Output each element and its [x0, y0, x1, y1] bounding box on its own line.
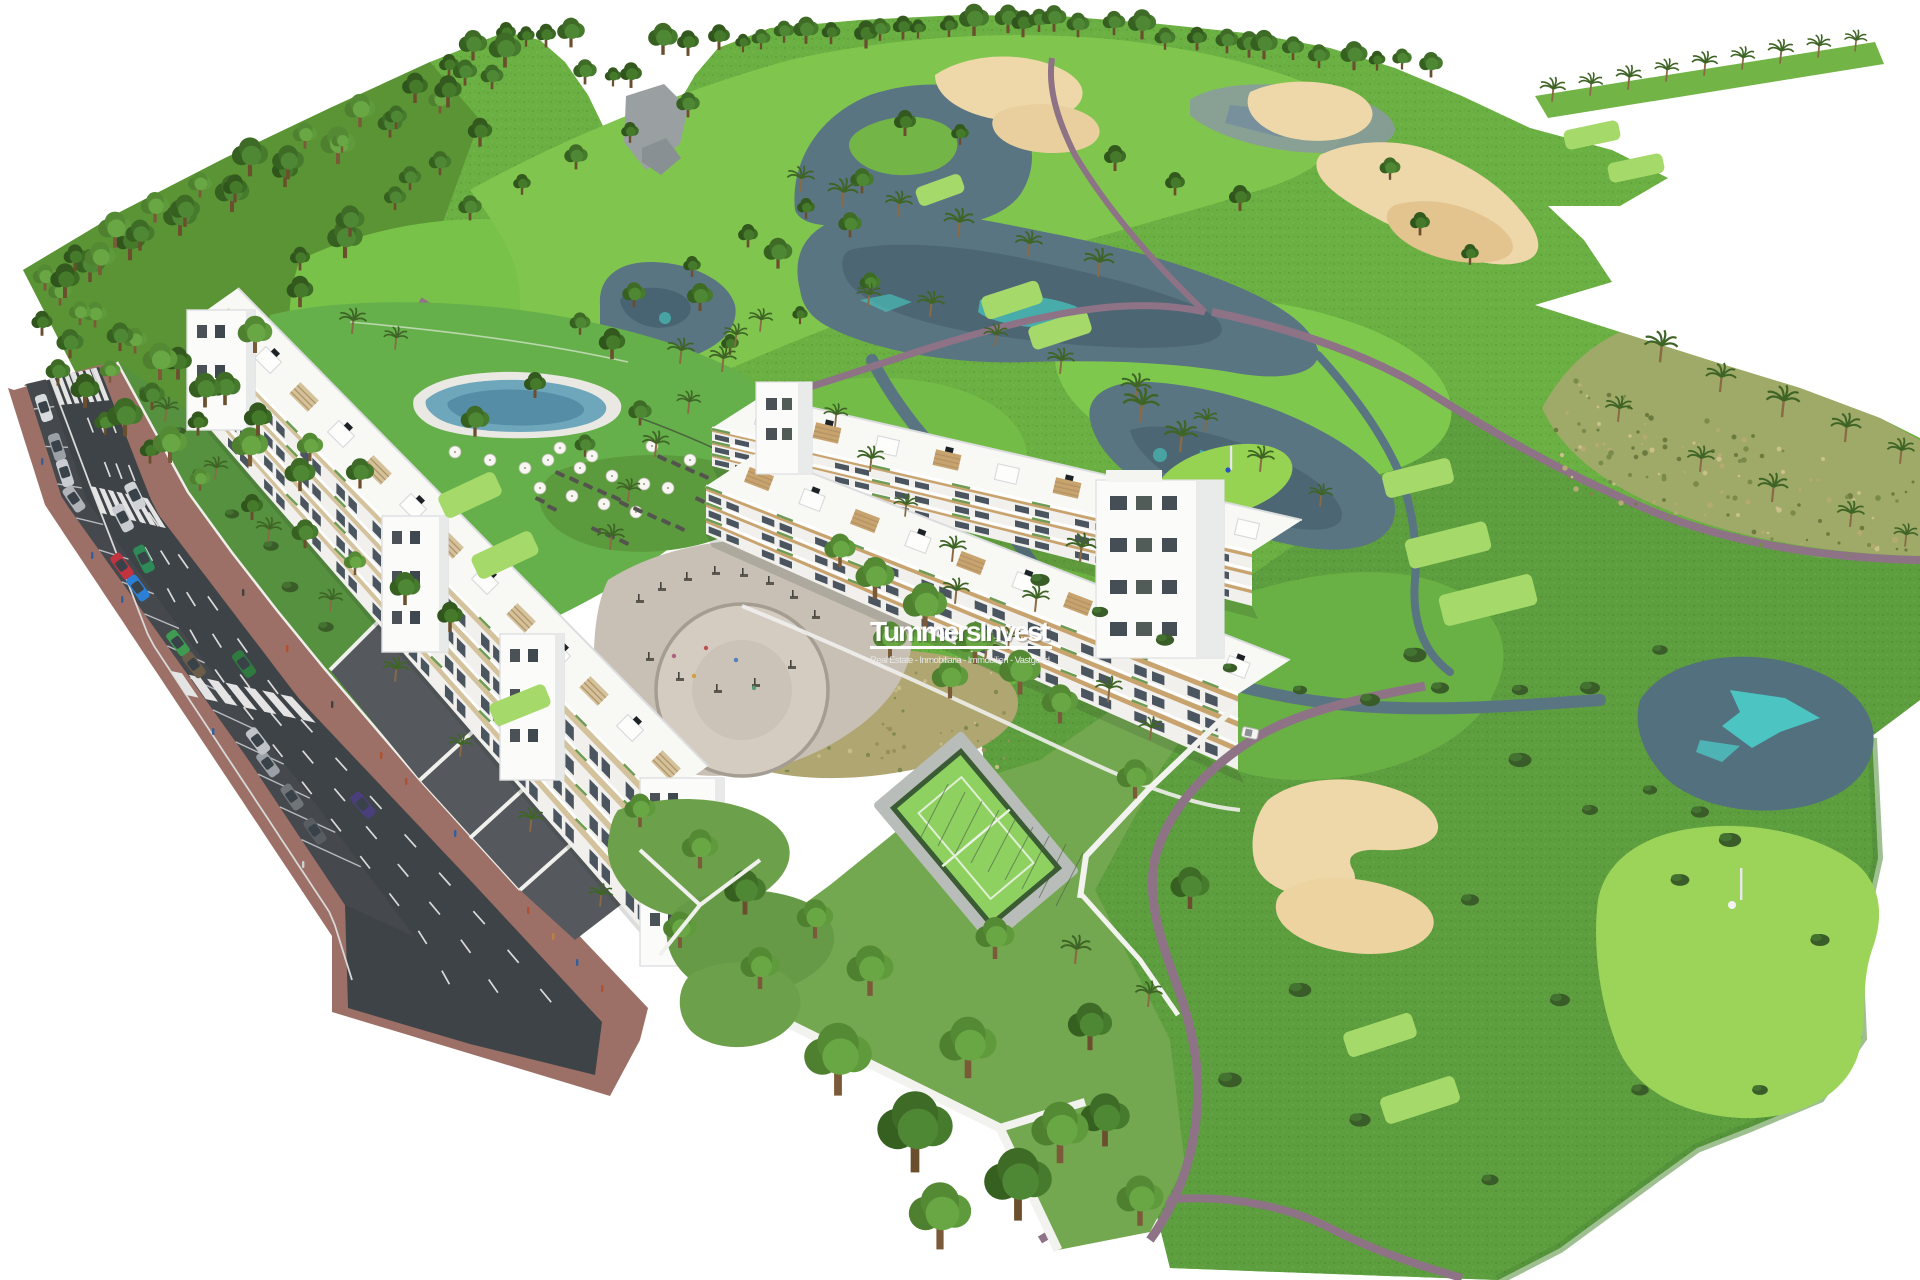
svg-text:Real Estate - Inmobiliaria - I: Real Estate - Inmobiliaria - Immobilien …	[870, 655, 1050, 666]
svg-text:TummersInvest: TummersInvest	[870, 616, 1050, 647]
